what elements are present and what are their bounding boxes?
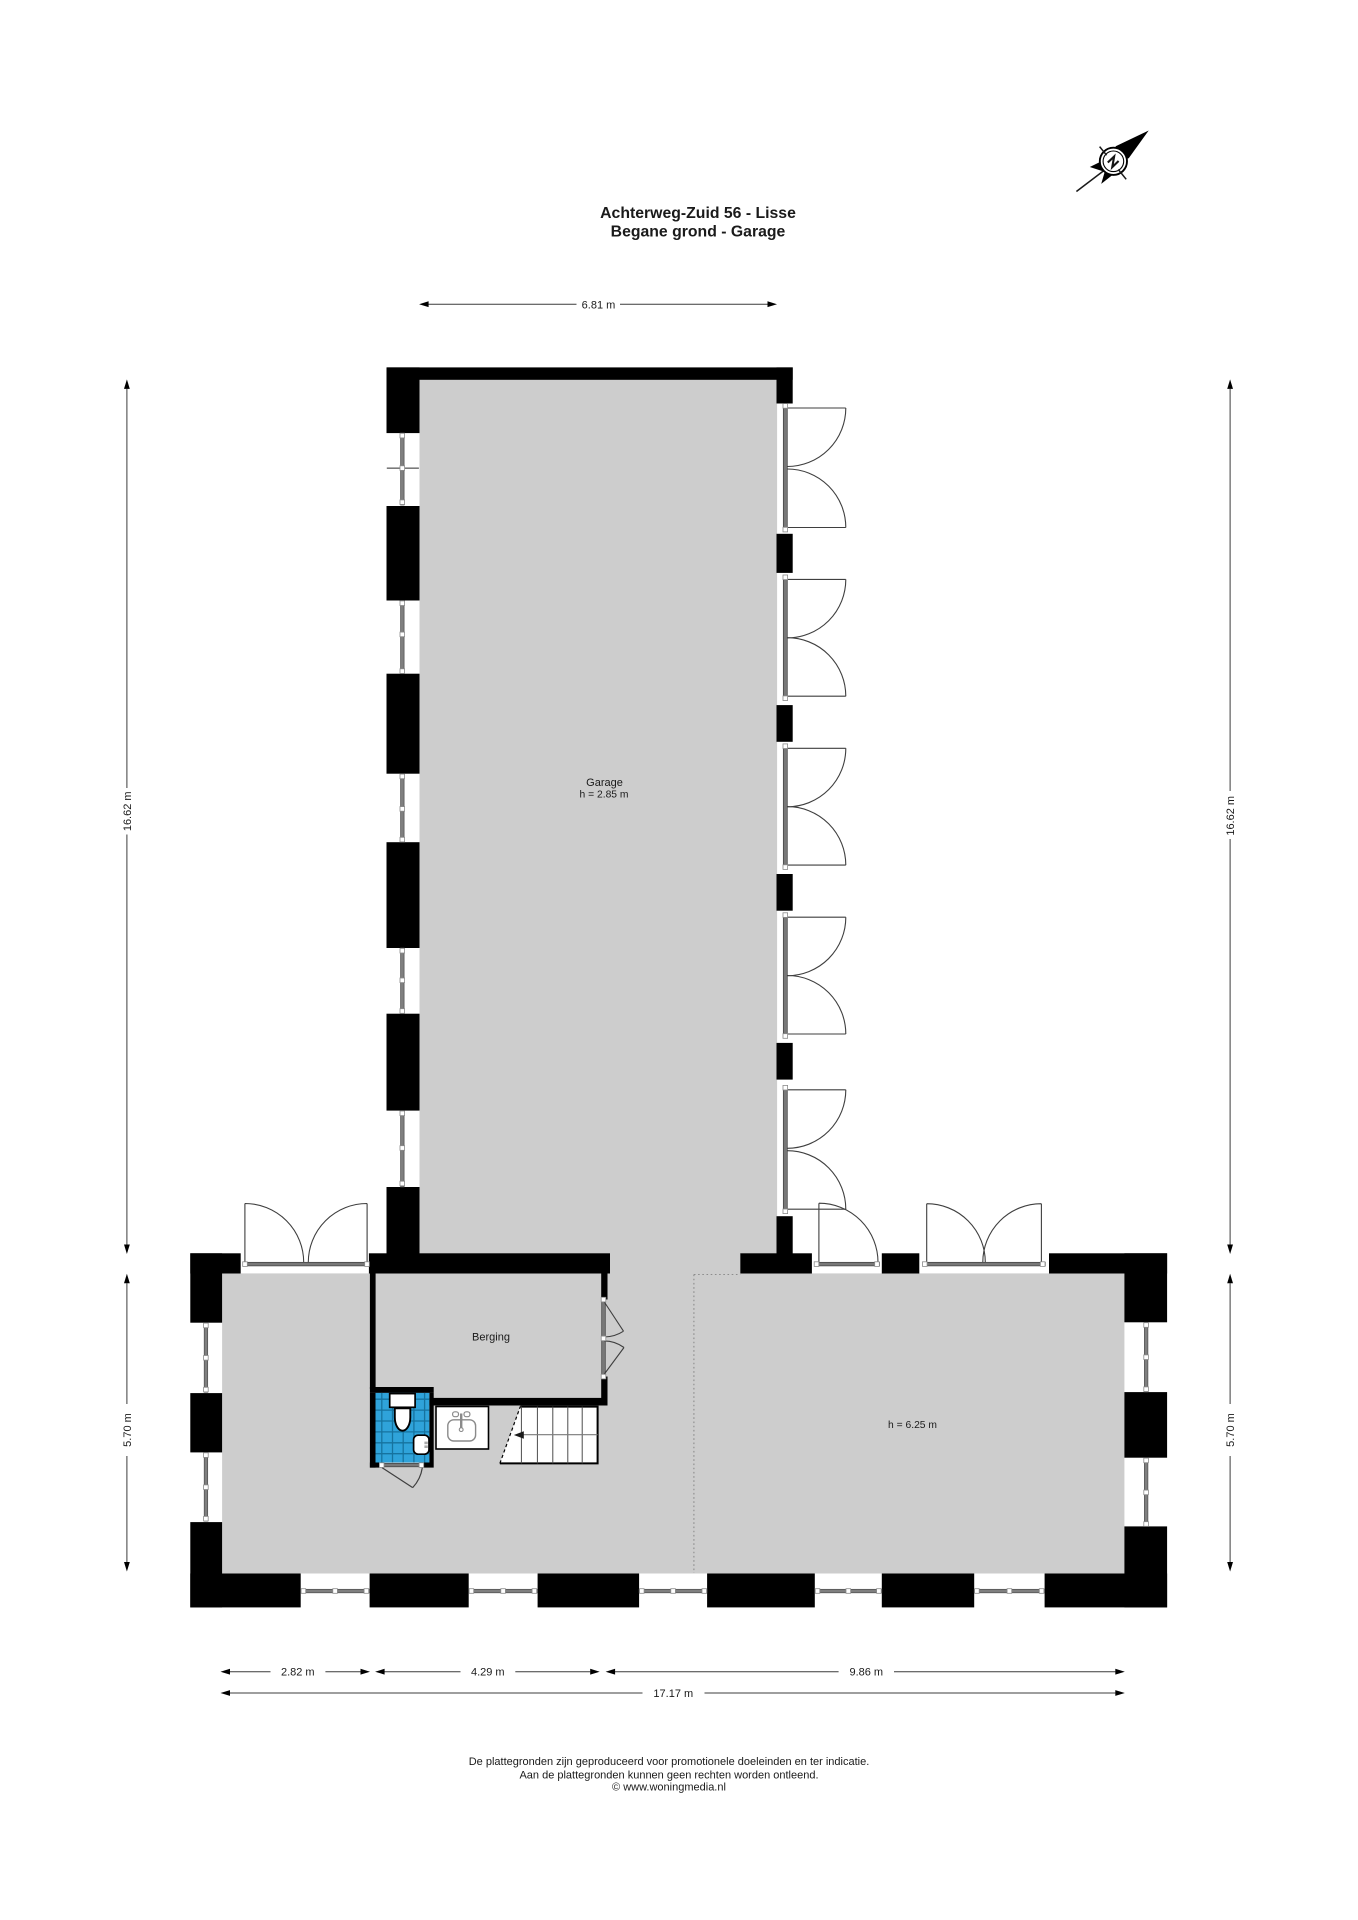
svg-text:h = 2.85 m: h = 2.85 m <box>580 790 629 801</box>
svg-text:Achterweg-Zuid 56 - Lisse: Achterweg-Zuid 56 - Lisse <box>600 205 796 222</box>
svg-text:5.70 m: 5.70 m <box>1225 1413 1237 1447</box>
svg-text:6.81 m: 6.81 m <box>582 299 616 311</box>
svg-text:Aan de plattegronden kunnen ge: Aan de plattegronden kunnen geen rechten… <box>519 1769 818 1781</box>
svg-text:4.29 m: 4.29 m <box>471 1667 505 1679</box>
svg-text:Garage: Garage <box>586 777 623 789</box>
svg-text:17.17 m: 17.17 m <box>653 1688 693 1700</box>
svg-text:16.62 m: 16.62 m <box>1225 796 1237 836</box>
svg-text:Berging: Berging <box>472 1332 510 1344</box>
svg-text:De plattegronden zijn geproduc: De plattegronden zijn geproduceerd voor … <box>469 1756 870 1768</box>
svg-text:© www.woningmedia.nl: © www.woningmedia.nl <box>612 1782 726 1794</box>
svg-text:Begane grond - Garage: Begane grond - Garage <box>611 224 786 241</box>
svg-text:16.62 m: 16.62 m <box>122 791 134 831</box>
svg-text:5.70 m: 5.70 m <box>122 1413 134 1447</box>
svg-text:h = 6.25 m: h = 6.25 m <box>888 1420 937 1431</box>
svg-text:9.86 m: 9.86 m <box>849 1667 883 1679</box>
svg-text:2.82 m: 2.82 m <box>281 1667 315 1679</box>
